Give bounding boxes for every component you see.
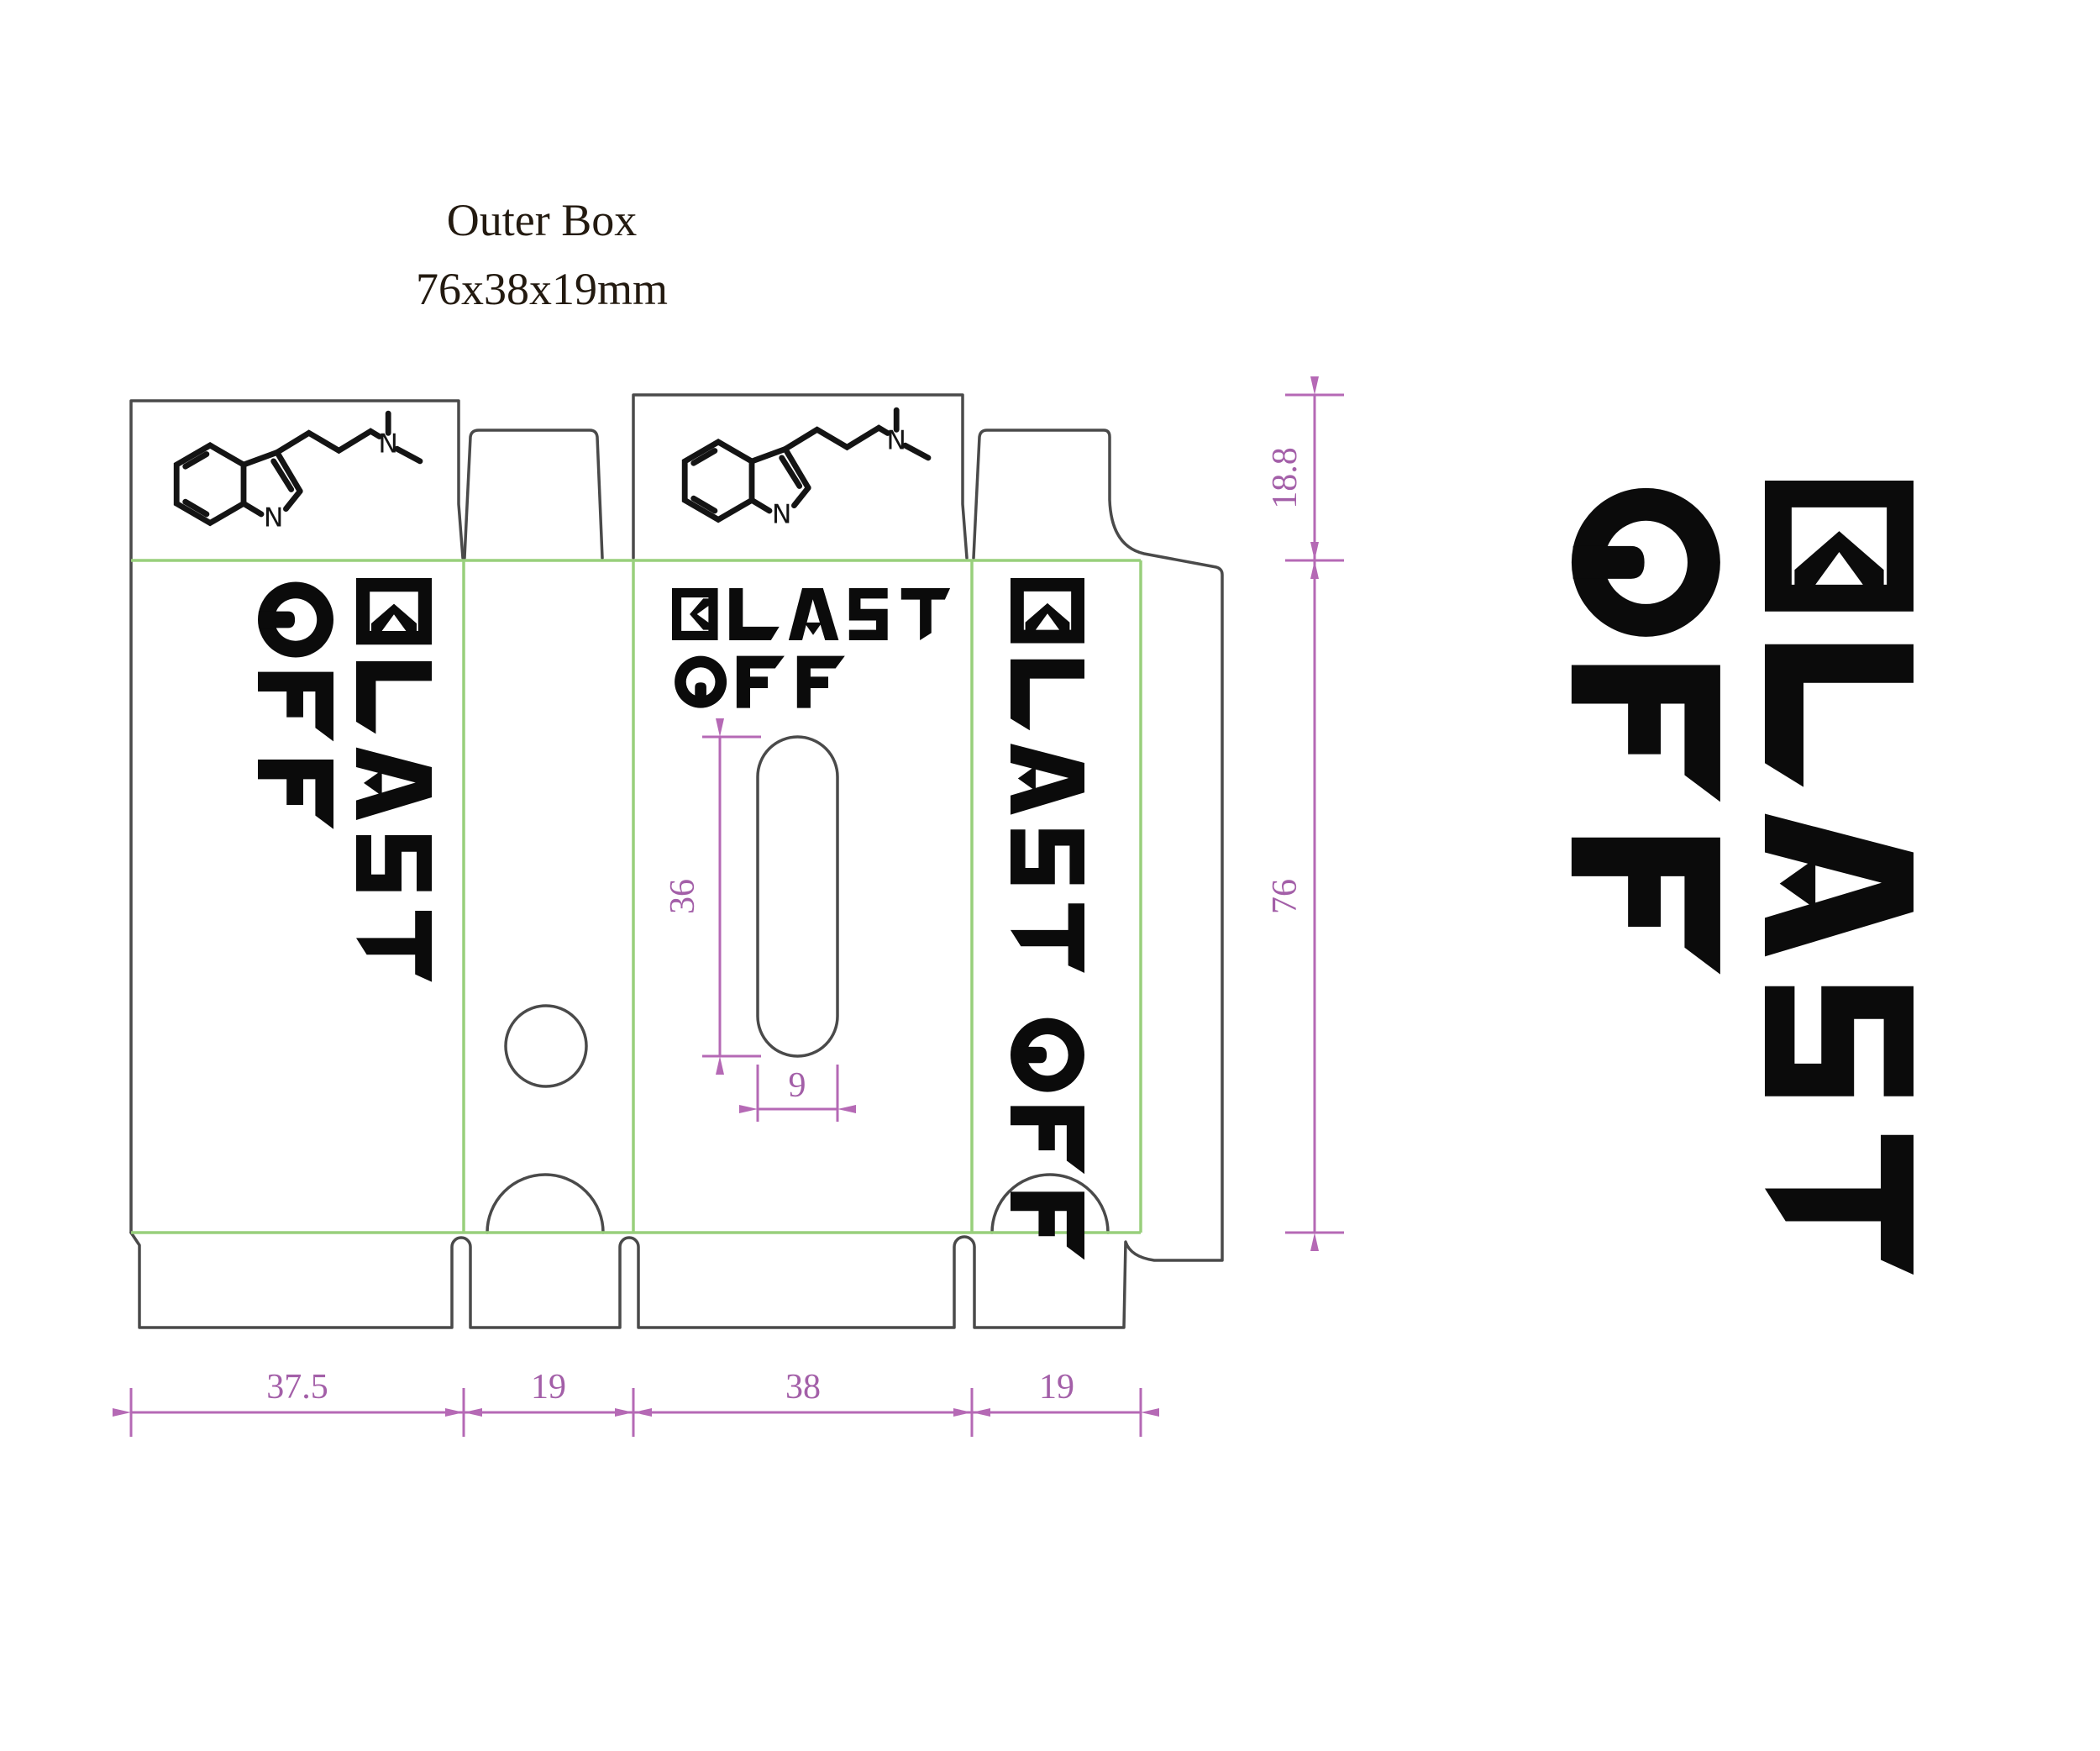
blast-off-logo-panel1-rotated	[258, 578, 432, 982]
indole-nitrogen-label: N	[264, 503, 284, 534]
dust-flap-2-cut	[465, 430, 602, 558]
molecule-structure-flap1: N N	[176, 413, 420, 533]
dimension-window-slot: 36 9	[664, 737, 837, 1122]
window-slot-cutout	[758, 737, 837, 1056]
blast-off-logo-panel4-rotated	[1011, 578, 1084, 1259]
dim-value-37-5: 37.5	[266, 1368, 328, 1407]
blast-off-logo-panel3	[672, 588, 950, 708]
fold-lines	[131, 560, 1141, 1233]
dim-value-76: 76	[1266, 879, 1305, 914]
dim-value-9: 9	[789, 1066, 806, 1105]
dim-value-18-8: 18.8	[1266, 447, 1305, 509]
dim-value-19b: 19	[1039, 1368, 1074, 1407]
indole-nitrogen-label: N	[772, 500, 792, 530]
dieline-outline	[131, 395, 1222, 1328]
amine-nitrogen-label: N	[378, 429, 398, 459]
title-line-2: 76x38x19mm	[416, 264, 668, 314]
panel1-and-flap1-cut	[131, 401, 463, 1233]
thumb-hole-circle	[506, 1006, 586, 1086]
amine-nitrogen-label: N	[886, 425, 906, 455]
drawing-title: Outer Box 76x38x19mm	[416, 195, 668, 314]
title-line-1: Outer Box	[447, 195, 637, 245]
molecule-structure-flap3: N N	[685, 410, 928, 529]
dim-value-36: 36	[664, 879, 702, 914]
dim-value-38: 38	[785, 1368, 821, 1407]
dieline-drawing-page: Outer Box 76x38x19mm N N N N	[0, 0, 2100, 1751]
thumb-notch-arc-panel2	[487, 1175, 603, 1233]
dim-value-19a: 19	[531, 1368, 566, 1407]
dimension-bottom-widths: 37.5 19 38 19	[131, 1368, 1141, 1437]
dimension-right-heights: 18.8 76	[1266, 395, 1344, 1233]
blast-off-logo-large-artwork	[1572, 481, 1914, 1275]
